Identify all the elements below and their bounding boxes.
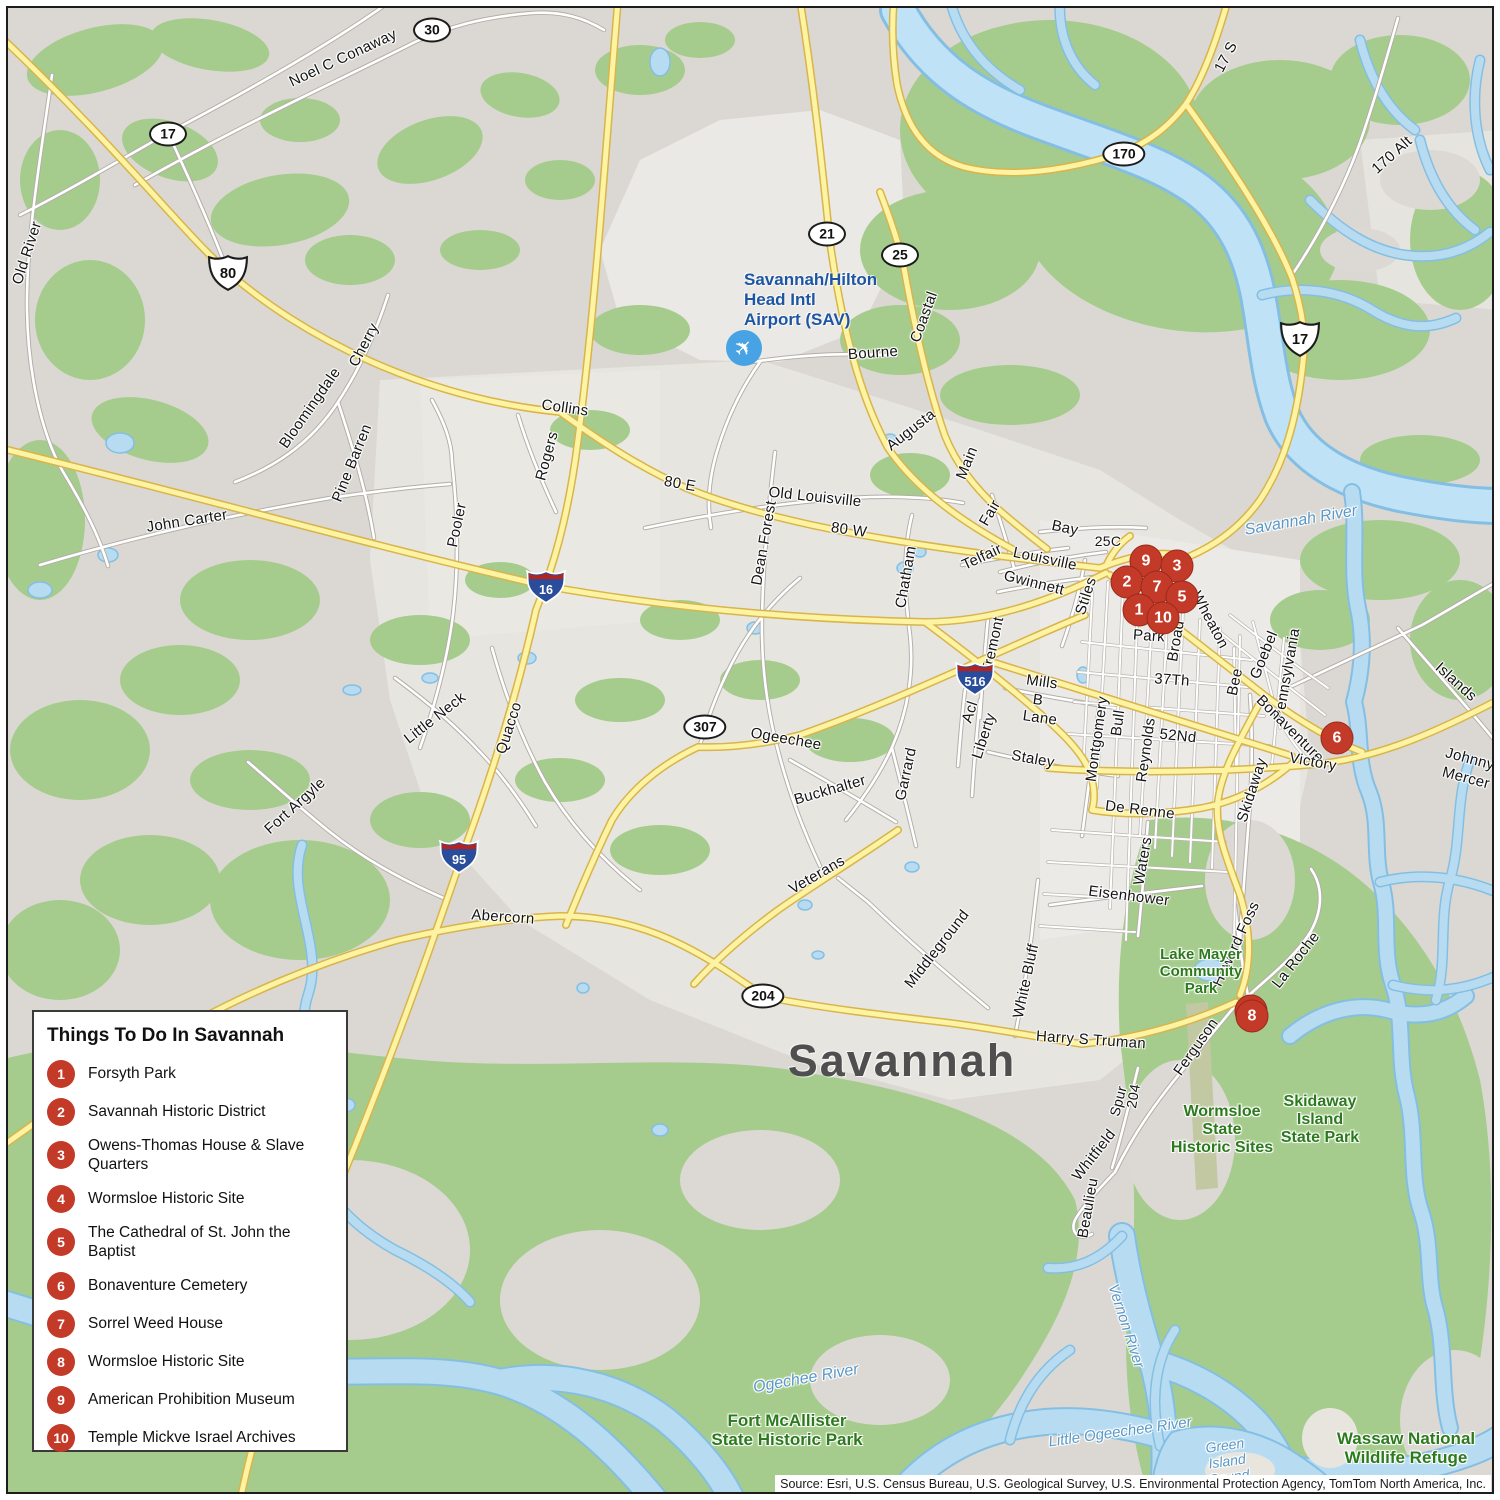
road-label: La Roche xyxy=(1269,929,1323,992)
legend-item-label: Savannah Historic District xyxy=(88,1102,265,1121)
legend-item-5: 5The Cathedral of St. John the Baptist xyxy=(47,1223,331,1262)
water-label: Vernon River xyxy=(1104,1282,1147,1370)
legend-item-number: 8 xyxy=(47,1348,75,1376)
legend-item-3: 3Owens-Thomas House & Slave Quarters xyxy=(47,1136,331,1175)
source-attribution: Source: Esri, U.S. Census Bureau, U.S. G… xyxy=(775,1475,1491,1493)
road-label: Middleground xyxy=(901,907,973,992)
legend-title: Things To Do In Savannah xyxy=(47,1025,331,1047)
road-label: Gwinnett xyxy=(1002,567,1066,598)
road-label: 17 S xyxy=(1211,39,1241,75)
poi-marker-8: 8 xyxy=(1236,1000,1269,1033)
legend-item-9: 9American Prohibition Museum xyxy=(47,1386,331,1414)
road-label: Old Louisville xyxy=(768,484,863,511)
road-label: 80 W xyxy=(830,519,868,541)
legend-item-label: Owens-Thomas House & Slave Quarters xyxy=(88,1136,331,1175)
road-label: John Carter xyxy=(145,506,228,536)
road-label: Fair xyxy=(976,497,1004,529)
road-label: Eisenhower xyxy=(1088,883,1171,910)
road-label: Skidaway xyxy=(1234,756,1271,825)
legend-item-6: 6Bonaventure Cemetery xyxy=(47,1272,331,1300)
airport-label: Savannah/Hilton Head Intl Airport (SAV) xyxy=(744,270,877,330)
legend-item-label: Bonaventure Cemetery xyxy=(88,1276,247,1295)
road-label: White Bluff xyxy=(1010,942,1042,1019)
legend-item-number: 1 xyxy=(47,1060,75,1088)
legend-item-number: 6 xyxy=(47,1272,75,1300)
road-label: De Renne xyxy=(1104,797,1176,822)
road-label: Goebel xyxy=(1247,629,1282,682)
road-label: Reynolds xyxy=(1133,717,1159,784)
water-label: Ogechee River xyxy=(752,1361,860,1397)
poi-marker-6: 6 xyxy=(1321,722,1354,755)
road-label: Waters xyxy=(1130,836,1155,887)
road-label: Louisville xyxy=(1012,544,1079,574)
road-label: Whitfield xyxy=(1069,1126,1119,1184)
legend-item-label: Wormsloe Historic Site xyxy=(88,1189,244,1208)
water-label: Little Ogeechee River xyxy=(1047,1414,1192,1451)
road-label: Ogeechee xyxy=(749,724,822,753)
road-label: 52Nd xyxy=(1159,726,1198,747)
road-label: 37Th xyxy=(1154,670,1190,689)
road-label: Pine Barren xyxy=(329,422,376,505)
legend-item-number: 10 xyxy=(47,1424,75,1452)
interstate-shield: 16 xyxy=(525,567,567,605)
road-label: 80 E xyxy=(663,473,698,495)
svg-text:17: 17 xyxy=(1292,332,1308,348)
route-shield-oval: 21 xyxy=(808,222,846,247)
route-shield-oval: 170 xyxy=(1102,142,1145,167)
svg-text:16: 16 xyxy=(539,583,553,597)
airport-label-line: Airport (SAV) xyxy=(744,310,877,330)
road-label: Main xyxy=(953,444,981,482)
park-label: Lake MayerCommunityPark xyxy=(1160,947,1243,997)
road-label: Ferguson xyxy=(1170,1015,1222,1079)
airport-label-line: Head Intl xyxy=(744,290,877,310)
poi-marker-10: 10 xyxy=(1147,602,1180,635)
road-label: Old River xyxy=(9,219,45,286)
us-route-shield: 17 xyxy=(1279,320,1321,358)
road-label: Little Neck xyxy=(401,689,469,748)
legend-item-10: 10Temple Mickve Israel Archives xyxy=(47,1424,331,1452)
road-label: Noel C Conaway xyxy=(286,26,399,91)
airport-label-line: Savannah/Hilton xyxy=(744,270,877,290)
road-label: Augusta xyxy=(883,406,939,455)
road-label: Telfair xyxy=(959,540,1004,573)
road-label: Mills xyxy=(1025,671,1059,692)
legend-item-label: Forsyth Park xyxy=(88,1064,176,1083)
interstate-shield: 95 xyxy=(438,837,480,875)
road-label: Veterans xyxy=(786,852,848,898)
route-shield-oval: 17 xyxy=(149,122,187,147)
road-label: Bull xyxy=(1108,709,1128,737)
legend-item-number: 9 xyxy=(47,1386,75,1414)
road-label: Dean Forest xyxy=(748,499,780,586)
legend-item-7: 7Sorrel Weed House xyxy=(47,1310,331,1338)
svg-text:95: 95 xyxy=(452,853,466,867)
legend-item-4: 4Wormsloe Historic Site xyxy=(47,1185,331,1213)
road-label: Quacco xyxy=(493,700,526,756)
legend-item-label: Sorrel Weed House xyxy=(88,1314,223,1333)
road-label: Buckhalter xyxy=(792,772,868,809)
road-label: 25C xyxy=(1095,533,1122,549)
road-label: Fort Argyle xyxy=(261,774,329,837)
savannah-map: Noel C ConawayOld RiverCherryBloomingdal… xyxy=(0,0,1500,1500)
legend-item-number: 3 xyxy=(47,1141,75,1169)
road-label: Pooler xyxy=(444,501,470,549)
road-label: Spur xyxy=(1106,1084,1129,1118)
road-label: Abercorn xyxy=(471,906,535,927)
legend-items: 1Forsyth Park2Savannah Historic District… xyxy=(47,1060,331,1452)
road-label: Collins xyxy=(540,396,589,419)
route-shield-oval: 307 xyxy=(683,715,726,740)
legend-item-number: 7 xyxy=(47,1310,75,1338)
road-label: Harry S Truman xyxy=(1036,1028,1147,1053)
road-label: Coastal xyxy=(907,289,941,345)
road-label: Staley xyxy=(1010,747,1056,771)
road-label: 170 Alt xyxy=(1368,133,1415,178)
legend-item-8: 8Wormsloe Historic Site xyxy=(47,1348,331,1376)
svg-text:516: 516 xyxy=(964,675,985,689)
legend-item-number: 4 xyxy=(47,1185,75,1213)
road-label: Islands xyxy=(1432,659,1480,705)
us-route-shield: 80 xyxy=(207,254,249,292)
route-shield-oval: 30 xyxy=(413,18,451,43)
park-label: WormsloeStateHistoric Sites xyxy=(1171,1103,1273,1157)
route-shield-oval: 204 xyxy=(741,984,784,1009)
park-label: SkidawayIslandState Park xyxy=(1281,1093,1359,1147)
road-label: Beaulieu xyxy=(1074,1177,1101,1240)
road-label: Montgomery xyxy=(1083,695,1112,783)
park-label: Fort McAllisterState Historic Park xyxy=(711,1411,862,1449)
legend-item-1: 1Forsyth Park xyxy=(47,1060,331,1088)
legend-item-label: The Cathedral of St. John the Baptist xyxy=(88,1223,331,1262)
legend-item-number: 2 xyxy=(47,1098,75,1126)
legend-item-label: American Prohibition Museum xyxy=(88,1390,295,1409)
city-label: Savannah xyxy=(788,1035,1017,1087)
road-label: Rogers xyxy=(532,430,561,483)
road-label: Chatham xyxy=(892,545,920,610)
road-label: Acl xyxy=(959,699,982,725)
route-shield-oval: 25 xyxy=(881,243,919,268)
park-label: Wassaw NationalWildlife Refuge xyxy=(1337,1429,1475,1467)
road-label: Bee xyxy=(1224,667,1246,698)
legend-panel: Things To Do In Savannah 1Forsyth Park2S… xyxy=(32,1010,348,1452)
road-label: Lane xyxy=(1022,707,1059,729)
legend-item-label: Wormsloe Historic Site xyxy=(88,1352,244,1371)
road-label: Garrard xyxy=(892,746,920,802)
water-label: Savannah River xyxy=(1243,502,1358,539)
legend-item-number: 5 xyxy=(47,1228,75,1256)
road-label: Stiles xyxy=(1072,575,1100,617)
road-label: Bay xyxy=(1050,517,1080,539)
legend-item-label: Temple Mickve Israel Archives xyxy=(88,1428,296,1447)
road-label: Bourne xyxy=(847,343,898,363)
road-label: Bloomingdale xyxy=(276,364,344,451)
svg-text:80: 80 xyxy=(220,266,236,282)
road-label: Cherry xyxy=(346,320,383,369)
road-label: B xyxy=(1032,691,1045,709)
legend-item-2: 2Savannah Historic District xyxy=(47,1098,331,1126)
interstate-shield: 516 xyxy=(954,659,996,697)
